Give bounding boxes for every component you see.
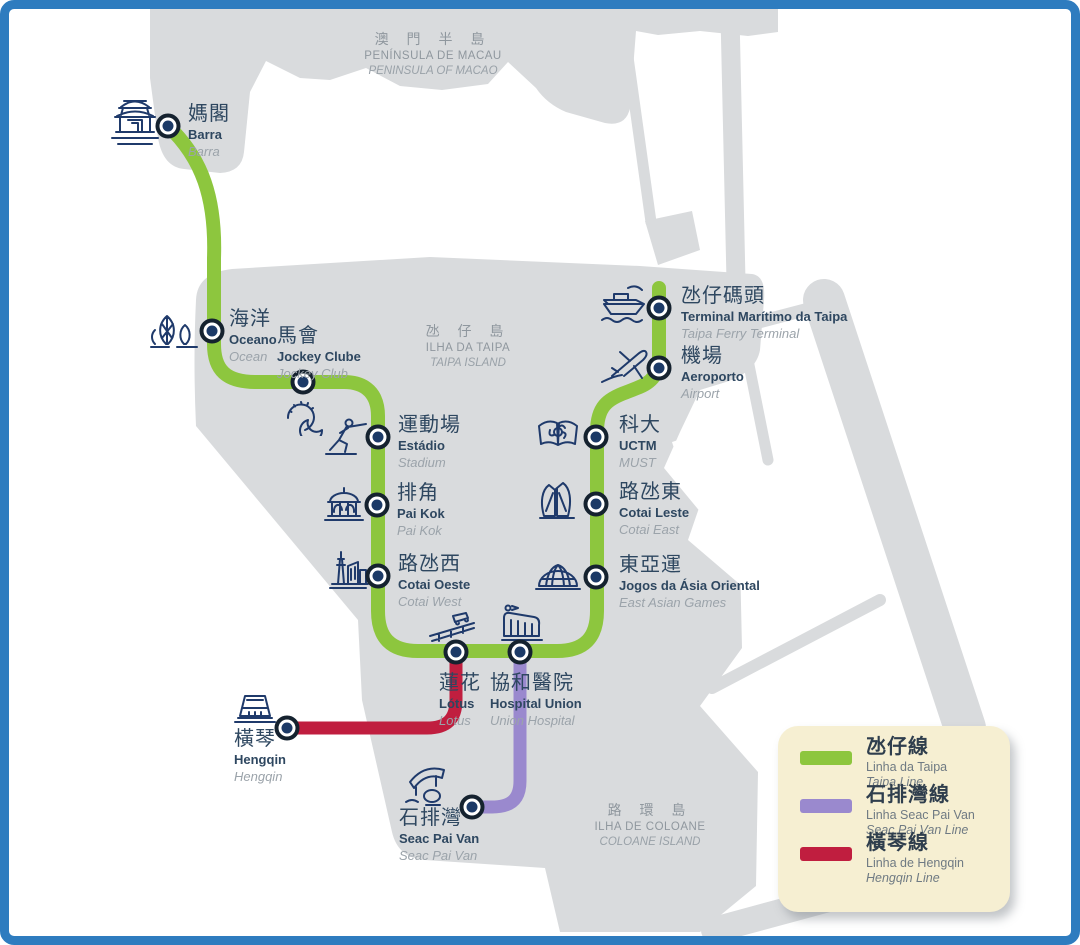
pavilion-icon [322,484,366,522]
bridge-strip [730,16,737,325]
station-label: 科大 UCTM MUST [619,413,661,471]
region-label-coloane-island: 路 環 島 ILHA DE COLOANE COLOANE ISLAND [594,801,705,849]
tower-buildings-icon [324,550,370,590]
station-label: 協和醫院 Hospital Union Union Hospital [490,671,582,729]
station-marker[interactable] [584,565,609,590]
station-marker[interactable] [366,425,391,450]
station-marker[interactable] [366,564,391,589]
hospital-icon [498,602,544,642]
station-label: 石排灣 Seac Pai Van Seac Pai Van [399,806,479,864]
ferry-icon [598,282,650,324]
station-label: 路氹東 Cotai Leste Cotai East [619,480,689,538]
station-marker[interactable] [444,640,469,665]
region-label-macau-peninsula: 澳 門 半 島 PENÍNSULA DE MACAU PENINSULA OF … [364,30,501,78]
station-label: 東亞運 Jogos da Ásia Oriental East Asian Ga… [619,553,760,611]
station-marker[interactable] [647,356,672,381]
station-label: 馬會 Jockey Clube Jockey Club [277,324,361,382]
station-label: 媽閣 Barra Barra [188,102,230,160]
station-label: 蓮花 Lótus Lotus [439,671,481,729]
station-label: 機場 Aeroporto Airport [681,344,744,402]
station-label: 氹仔碼頭 Terminal Marítimo da Taipa Taipa Fe… [681,284,847,342]
legend-item-hengqin-line: 橫琴線 Linha de Hengqin Hengqin Line [800,830,964,886]
bridge-strip [622,14,651,222]
station-marker[interactable] [584,425,609,450]
station-marker[interactable] [508,640,533,665]
panda-pavilion-icon [400,760,452,808]
station-marker[interactable] [156,114,181,139]
macau-lrt-map: 澳 門 半 島 PENÍNSULA DE MACAU PENINSULA OF … [0,0,1080,945]
seac-pai-van-line-swatch [800,799,852,813]
station-marker[interactable] [584,492,609,517]
horseshoe-icon [280,394,328,436]
airport-runway-strip [824,300,965,728]
dome-icon [534,554,582,592]
book-building-icon [532,478,580,522]
ocean-towers-icon [146,304,204,352]
bridge-icon [426,608,478,644]
station-label: 運動場 Estádio Stadium [398,413,461,471]
station-label: 海洋 Oceano Ocean [229,307,277,365]
station-marker[interactable] [647,296,672,321]
airplane-icon [598,342,650,386]
station-label: 排角 Pai Kok Pai Kok [397,481,445,539]
fencer-icon [322,414,370,458]
station-marker[interactable] [200,319,225,344]
station-marker[interactable] [365,493,390,518]
temple-icon [108,94,162,152]
open-book-icon [534,414,582,454]
hengqin-line-swatch [800,847,852,861]
sea-channel [672,404,806,486]
legend: 氹仔線 Linha da Taipa Taipa Line 石排灣線 Linha… [778,726,1010,912]
border-building-icon [230,684,280,726]
taipa-line-swatch [800,751,852,765]
region-label-taipa-island: 氹 仔 島 ILHA DA TAIPA TAIPA ISLAND [426,322,511,370]
station-label: 橫琴 Hengqin Hengqin [234,727,286,785]
station-label: 路氹西 Cotai Oeste Cotai West [398,552,470,610]
